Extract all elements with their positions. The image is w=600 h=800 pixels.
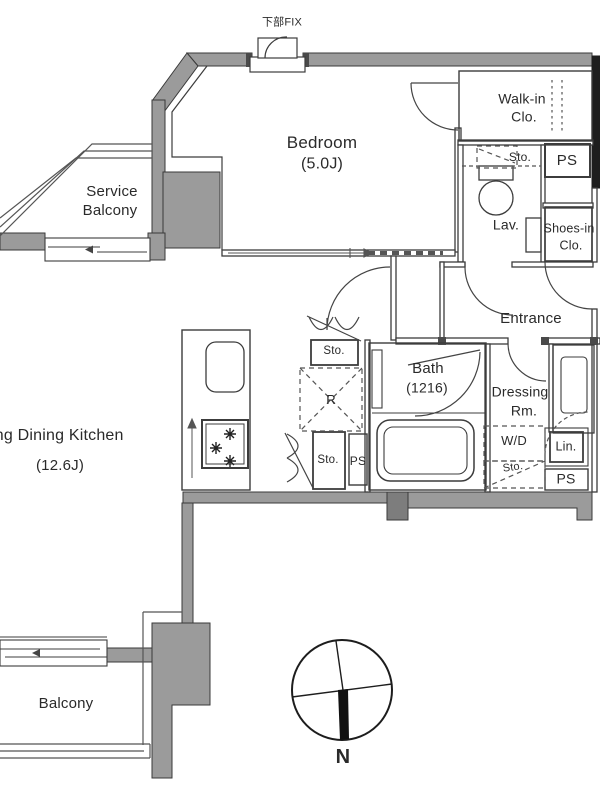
label-ps-bottom: PS <box>556 471 575 488</box>
label-ldk-name: Living Dining Kitchen <box>0 427 124 445</box>
label-compass-north: N <box>336 745 351 769</box>
bedroom-walkin-door <box>411 83 458 130</box>
label-fix-window: 下部FIX <box>262 16 302 29</box>
walkin-hanger-hatch <box>552 80 562 134</box>
label-balcony: Balcony <box>39 695 94 713</box>
label-walkin-1: Walk-in <box>498 91 546 108</box>
label-kitchen-storage: Sto. <box>317 454 338 468</box>
compass <box>292 640 392 740</box>
toilet <box>479 166 513 215</box>
label-service-balcony-2: Balcony <box>83 202 138 220</box>
label-wd-storage: Sto. <box>502 460 524 476</box>
kitchen-storage-doors <box>285 433 313 488</box>
entrance-door <box>545 262 592 309</box>
label-walkin-2: Clo. <box>511 109 537 126</box>
label-washer-dryer: W/D <box>501 433 527 449</box>
label-dressing-2: Rm. <box>511 403 537 420</box>
bathtub <box>377 420 474 481</box>
label-bath-name: Bath <box>412 360 444 378</box>
label-bath-size: (1216) <box>406 380 448 397</box>
label-ps-kitchen: PS <box>350 454 366 468</box>
label-hall-storage: Sto. <box>323 345 344 359</box>
hall-storage-doors <box>307 316 361 341</box>
dressing-room-door <box>508 344 546 381</box>
label-dressing-1: Dressing <box>492 384 549 401</box>
kitchen-sink <box>206 342 244 392</box>
service-balcony-window <box>45 238 150 261</box>
label-lav-storage: Sto. <box>509 150 531 164</box>
floor-plan: 下部FIX Service Balcony Bedroom (5.0J) Wal… <box>0 0 600 800</box>
label-shoes-1: Shoes-in <box>544 222 595 237</box>
label-bedroom-name: Bedroom <box>287 133 357 153</box>
lavatory-door <box>465 262 513 315</box>
label-lavatory: Lav. <box>493 217 519 234</box>
label-shoes-2: Clo. <box>559 239 582 254</box>
label-ps-top: PS <box>557 152 577 170</box>
label-entrance: Entrance <box>500 310 562 328</box>
balcony-window <box>0 637 107 666</box>
label-service-balcony-1: Service <box>86 183 137 201</box>
label-ldk-size: (12.6J) <box>36 457 84 475</box>
compass-needle <box>338 689 349 740</box>
fix-window <box>250 37 305 72</box>
label-linen: Lin. <box>556 440 577 455</box>
label-refrigerator: R <box>326 392 336 408</box>
label-bedroom-size: (5.0J) <box>301 154 343 173</box>
